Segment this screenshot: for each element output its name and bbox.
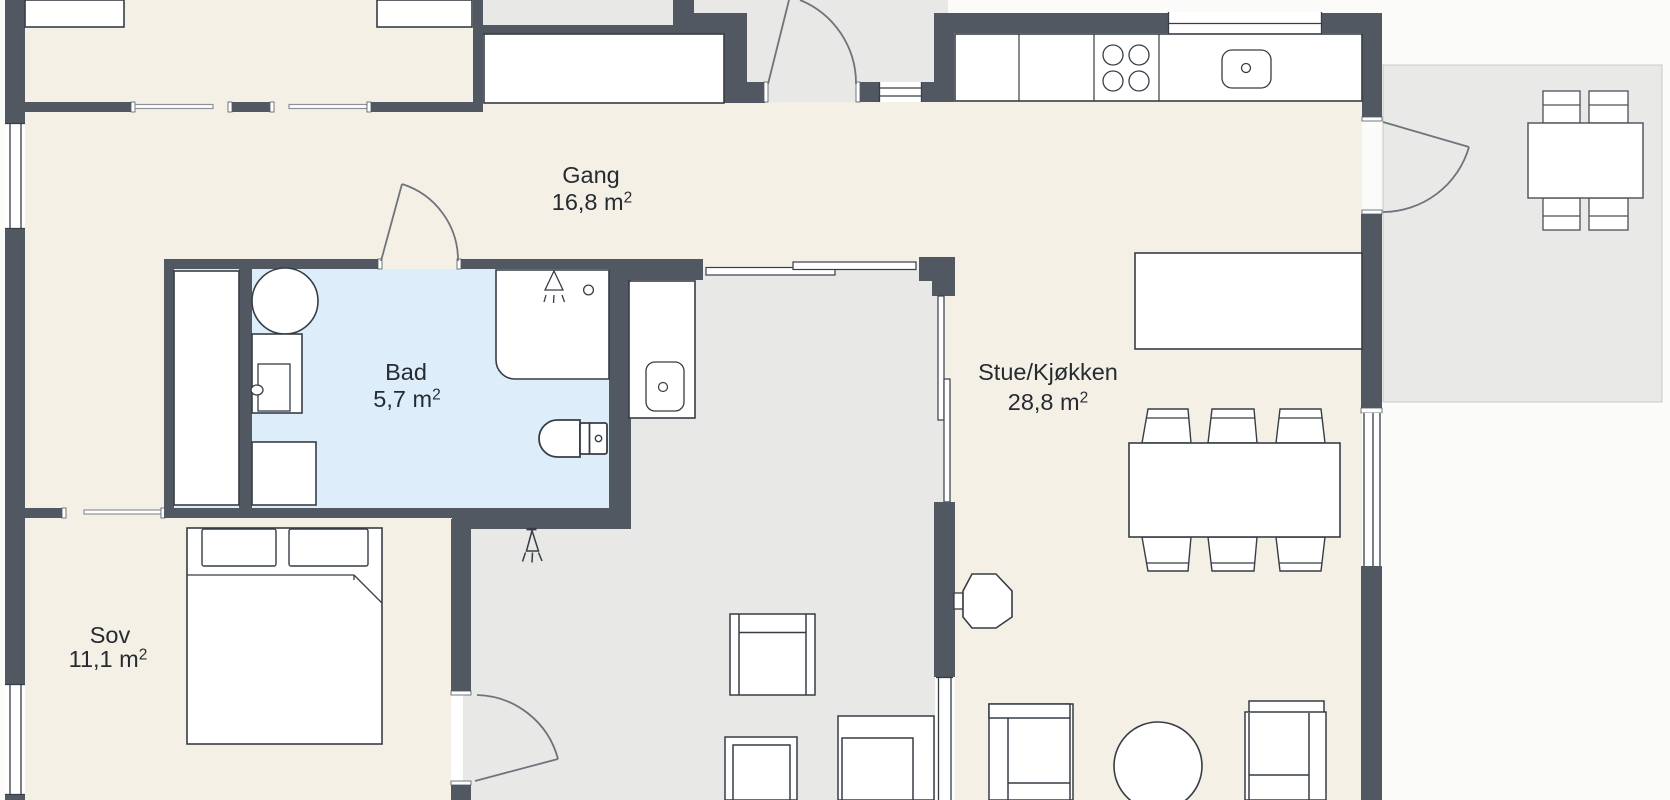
- svg-text:16,8 m2: 16,8 m2: [552, 189, 632, 215]
- svg-text:5,7 m2: 5,7 m2: [373, 386, 440, 412]
- svg-text:Sov: Sov: [90, 622, 131, 648]
- svg-text:Gang: Gang: [562, 162, 620, 188]
- svg-text:28,8 m2: 28,8 m2: [1008, 389, 1088, 415]
- svg-text:Stue/Kjøkken: Stue/Kjøkken: [978, 359, 1118, 385]
- svg-text:Bad: Bad: [385, 359, 427, 385]
- svg-text:11,1 m2: 11,1 m2: [69, 646, 148, 672]
